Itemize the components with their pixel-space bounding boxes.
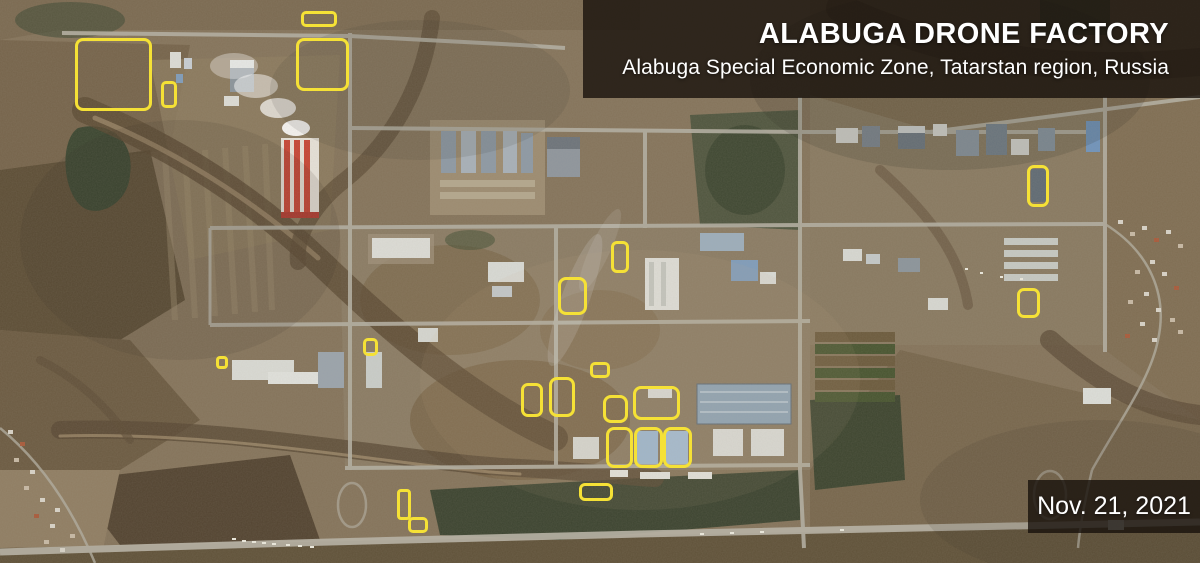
annotation-box-cluster-3 — [603, 395, 628, 423]
annotation-box-cluster-5 — [606, 427, 633, 468]
satellite-map-view: ALABUGA DRONE FACTORY Alabuga Special Ec… — [0, 0, 1200, 563]
annotation-box-south-wide — [579, 483, 613, 501]
annotation-box-cluster-1 — [521, 383, 543, 417]
annotation-box-center-mid — [558, 277, 587, 315]
annotation-box-cluster-7 — [663, 427, 692, 468]
title-overlay: ALABUGA DRONE FACTORY Alabuga Special Ec… — [583, 0, 1200, 98]
annotation-box-cluster-2 — [549, 377, 575, 417]
annotation-box-n-top — [301, 11, 337, 27]
annotation-box-south-tall — [397, 489, 411, 520]
annotation-box-east-small — [1017, 288, 1040, 318]
annotation-box-cluster-6 — [634, 427, 663, 468]
annotation-box-west-small — [216, 356, 228, 369]
annotation-box-cluster-4 — [633, 386, 680, 420]
date-label: Nov. 21, 2021 — [1028, 480, 1200, 533]
annotation-box-center-small — [590, 362, 610, 378]
annotation-box-east-tall — [1027, 165, 1049, 207]
annotation-box-nw-small — [161, 81, 177, 108]
map-title: ALABUGA DRONE FACTORY — [759, 18, 1169, 51]
annotation-box-nw-large — [75, 38, 152, 111]
annotation-box-south-small — [408, 517, 428, 533]
annotation-box-n-large — [296, 38, 349, 91]
map-subtitle: Alabuga Special Economic Zone, Tatarstan… — [622, 56, 1169, 80]
annotation-box-west-mid — [363, 338, 378, 356]
annotation-box-center-tall — [611, 241, 629, 273]
